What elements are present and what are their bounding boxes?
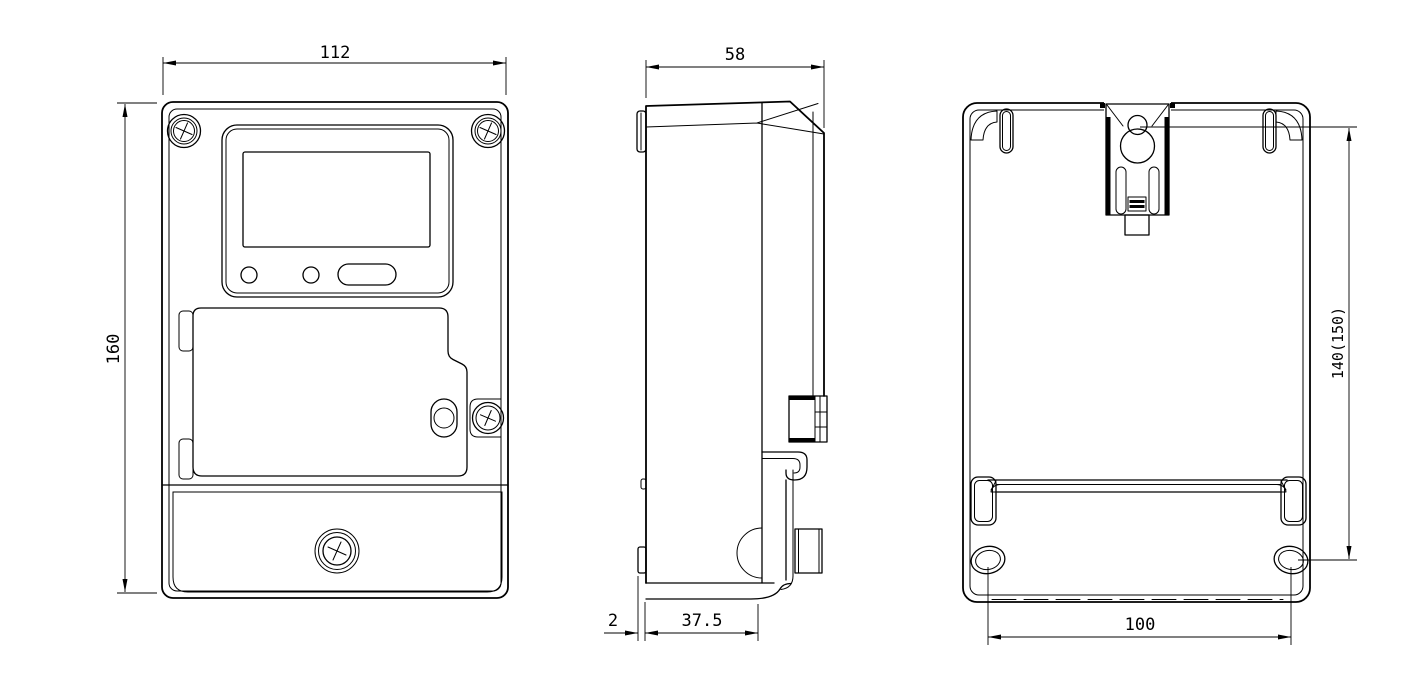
pill-button: [338, 264, 396, 285]
side-bottom-edges: [646, 583, 791, 599]
round-button-left: [241, 267, 257, 283]
meter-outline-drawing: 112 160: [0, 0, 1421, 692]
front-screw-top-left-icon: [168, 115, 201, 148]
lcd-screen: [243, 152, 430, 247]
front-screw-top-right-icon: [472, 115, 505, 148]
bracket-slot-right: [1149, 167, 1159, 214]
meter-cover-panel: [193, 308, 467, 476]
terminal-cover-inner: [173, 492, 502, 592]
cover-hinge-tab-lower: [179, 439, 193, 479]
dim-rear-tab: 2: [608, 611, 618, 631]
dim-side-depth: 58: [725, 45, 745, 65]
front-outer-case: [162, 102, 508, 598]
side-bottom-right-block: [795, 529, 822, 573]
dim-front-height: 160: [104, 334, 124, 365]
dim-terminal-depth: 37.5: [682, 611, 723, 631]
back-view: [963, 101, 1310, 602]
back-outer-case: [963, 103, 1310, 602]
round-button-right: [303, 267, 319, 283]
back-top-slot-left: [1000, 109, 1013, 153]
back-dimensions: 140(150) 100: [988, 127, 1357, 645]
back-inner-case: [970, 110, 1303, 595]
bracket-lower-tab: [1125, 215, 1149, 235]
back-ledge: [988, 480, 1287, 492]
cover-hinge-tab-upper: [179, 311, 193, 351]
technical-drawing-canvas: 112 160: [0, 0, 1421, 692]
bracket-slot-left: [1116, 167, 1126, 214]
rear-bottom-tab-side: [638, 547, 646, 573]
dim-hole-spacing: 100: [1125, 615, 1156, 635]
front-screw-middle-right-icon: [473, 403, 504, 434]
back-corner-gusset-left: [971, 111, 997, 140]
keyhole-small-circle: [1128, 116, 1147, 135]
back-corner-gusset-right: [1276, 111, 1302, 140]
back-top-slot-right: [1263, 109, 1276, 153]
side-view: [637, 102, 827, 600]
seal-screw-icon: [315, 529, 359, 573]
front-view: [162, 102, 508, 598]
front-inner-case: [169, 109, 501, 591]
dim-front-width: 112: [320, 43, 351, 63]
seal-button-circle: [434, 408, 454, 428]
seal-screw-side-bump: [737, 528, 762, 578]
side-terminal-block: [789, 396, 827, 442]
bracket-latch: [1128, 197, 1146, 211]
hanger-bracket: [1100, 101, 1175, 235]
seal-button-oval: [431, 399, 457, 437]
display-bezel-inner: [226, 129, 449, 293]
side-outline: [646, 102, 824, 584]
dim-hanger-to-hole: 140(150): [1329, 307, 1347, 379]
